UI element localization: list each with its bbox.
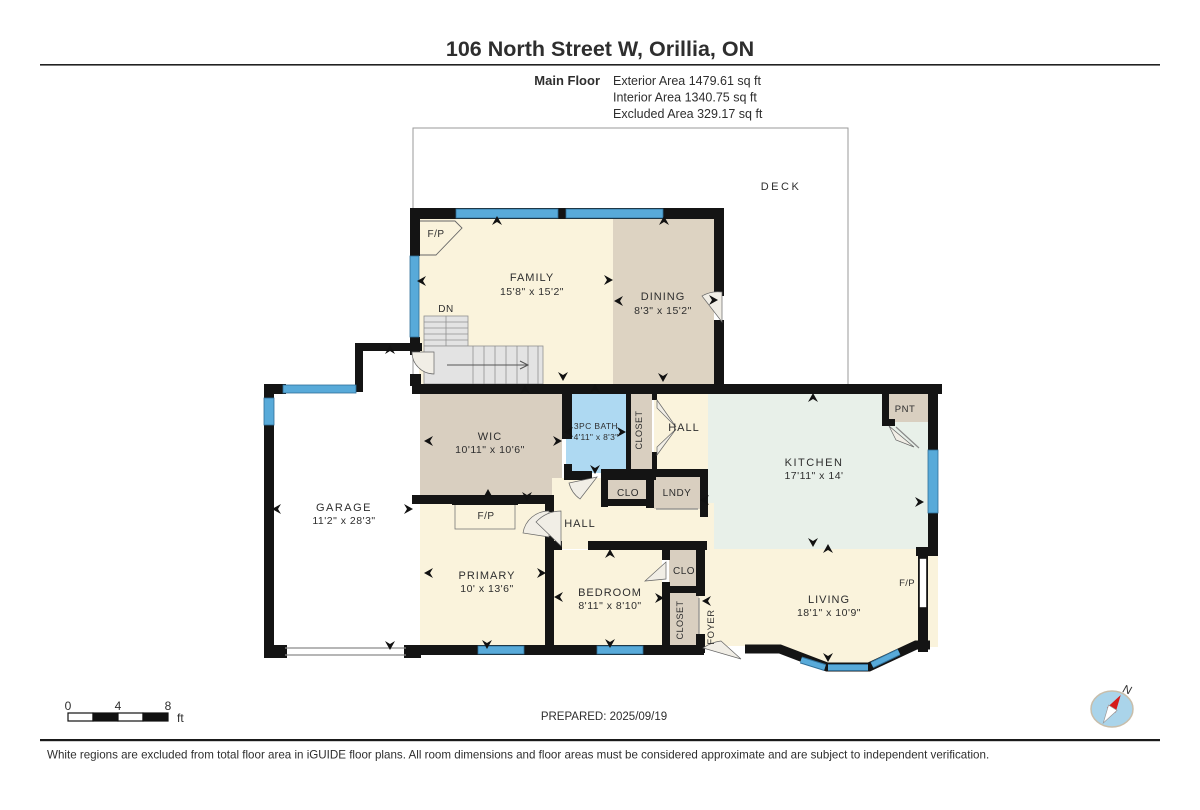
plan-label-kitchen: KITCHEN — [785, 457, 844, 469]
plan-label-bedroom: BEDROOM — [578, 587, 642, 599]
compass-icon: N — [1091, 683, 1133, 727]
wall — [882, 419, 895, 426]
window — [264, 398, 274, 425]
scale-bar: 0 4 8 ft — [65, 699, 185, 725]
window — [597, 646, 643, 654]
plan-label-foyer: FOYER — [706, 609, 717, 644]
plan-label-clo-bedroom: CLO — [673, 566, 695, 577]
plan-label-garage: GARAGE — [316, 502, 372, 514]
wall — [601, 499, 654, 506]
wall — [662, 544, 670, 560]
plan-label-primary-dims: 10' x 13'6" — [460, 583, 514, 595]
window — [478, 646, 524, 654]
plan-label-laundry: LNDY — [663, 488, 692, 499]
window — [410, 256, 419, 337]
wall — [588, 541, 707, 550]
wall — [410, 208, 420, 256]
excluded-area: Excluded Area 329.17 sq ft — [613, 107, 763, 121]
plan-label-fp-primary: F/P — [477, 511, 494, 522]
header-divider — [40, 64, 1160, 66]
wall — [928, 384, 938, 450]
wall — [700, 469, 708, 517]
page-title: 106 North Street W, Orillia, ON — [446, 37, 754, 61]
scale-segment — [143, 713, 168, 721]
disclaimer-text: White regions are excluded from total fl… — [47, 749, 989, 762]
wall — [714, 320, 724, 392]
plan-label-wic: WIC — [478, 431, 502, 443]
room-hall-upper — [654, 394, 708, 478]
plan-label-bedroom-dims: 8'11" x 8'10" — [578, 600, 641, 612]
wall — [626, 388, 631, 473]
footer-divider — [40, 739, 1160, 741]
plan-label-clo-hall: CLO — [617, 488, 639, 499]
scale-label-4: 4 — [115, 699, 122, 713]
scale-segment — [118, 713, 143, 721]
scale-unit: ft — [177, 711, 184, 725]
floorplan-drawing: DECKF/PFAMILY15'8" x 15'2"DNDINING8'3" x… — [264, 128, 942, 669]
plan-label-primary: PRIMARY — [459, 570, 516, 582]
scale-label-0: 0 — [65, 699, 72, 713]
window — [283, 385, 356, 393]
wall — [652, 388, 657, 400]
interior-area: Interior Area 1340.75 sq ft — [613, 91, 757, 105]
plan-label-garage-dims: 11'2" x 28'3" — [312, 515, 375, 527]
plan-label-hall-lower: HALL — [564, 518, 596, 530]
wall — [545, 495, 554, 512]
prepared-date: PREPARED: 2025/09/19 — [541, 711, 667, 723]
wall — [696, 634, 705, 653]
plan-label-hall-upper: HALL — [668, 422, 700, 434]
wall — [545, 536, 554, 653]
plan-label-closet-bath: CLOSET — [634, 410, 644, 449]
direction-arrow — [404, 504, 413, 514]
exterior-area: Exterior Area 1479.61 sq ft — [613, 74, 762, 88]
plan-label-living-dims: 18'1" x 10'9" — [797, 607, 861, 619]
direction-arrow — [385, 641, 395, 650]
fireplace-notch — [919, 558, 927, 608]
wall — [714, 208, 724, 296]
wall — [412, 645, 704, 655]
plan-label-family: FAMILY — [510, 272, 554, 284]
plan-label-kitchen-dims: 17'11" x 14' — [784, 470, 843, 482]
plan-label-family-dims: 15'8" x 15'2" — [500, 286, 564, 298]
plan-label-dining: DINING — [641, 291, 686, 303]
window — [456, 209, 558, 218]
plan-label-deck: DECK — [761, 181, 802, 193]
plan-label-closet-foyer: CLOSET — [675, 600, 685, 639]
plan-label-pantry: PNT — [895, 404, 916, 415]
wall — [668, 586, 699, 593]
plan-label-wic-dims: 10'11" x 10'6" — [455, 444, 525, 456]
wall — [452, 497, 518, 505]
wall — [412, 384, 942, 394]
scale-segment — [93, 713, 118, 721]
floor-label: Main Floor — [534, 73, 600, 88]
wall — [264, 645, 287, 658]
scale-label-8: 8 — [165, 699, 172, 713]
scale-segment — [68, 713, 93, 721]
window — [566, 209, 663, 218]
plan-label-living: LIVING — [808, 594, 850, 606]
plan-label-bath-dims: 4'11" x 8'3" — [574, 432, 619, 442]
plan-label-fp-family: F/P — [427, 229, 444, 240]
window — [928, 450, 938, 513]
plan-label-dining-dims: 8'3" x 15'2" — [634, 305, 692, 317]
floorplan-page: 106 North Street W, Orillia, ON Main Flo… — [0, 0, 1200, 805]
plan-label-dn: DN — [438, 304, 453, 315]
plan-label-fp-living: F/P — [899, 578, 915, 589]
plan-label-bath: 3PC BATH — [574, 421, 618, 431]
